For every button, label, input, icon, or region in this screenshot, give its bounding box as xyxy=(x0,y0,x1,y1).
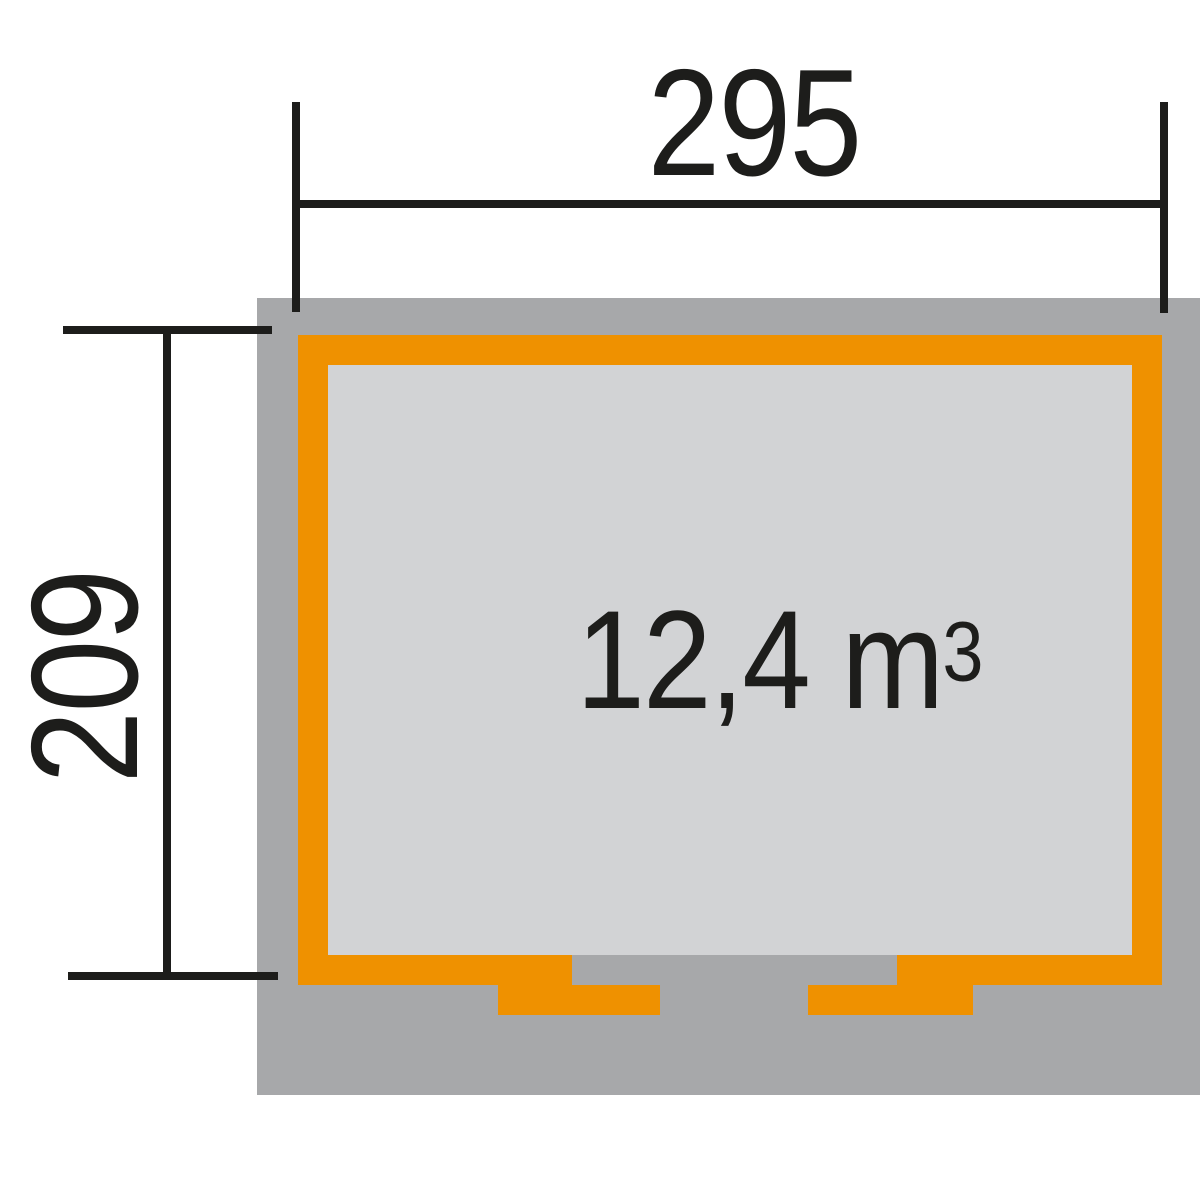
door-leaf-left xyxy=(498,985,660,1015)
width-dimension-tick-right xyxy=(1160,102,1168,313)
volume-value: 12,4 m xyxy=(576,581,942,738)
door-leaf-right xyxy=(808,985,973,1015)
volume-label: 12,4 m3 xyxy=(576,590,981,730)
width-dimension-tick-left xyxy=(292,102,300,312)
depth-dimension-tick-top xyxy=(63,326,272,334)
floor-plan-diagram: 295 209 12,4 m3 xyxy=(0,0,1200,1200)
width-dimension-label: 295 xyxy=(648,47,861,199)
depth-dimension-label: 209 xyxy=(9,571,161,784)
volume-exponent: 3 xyxy=(942,604,981,698)
door-opening xyxy=(572,955,897,985)
depth-dimension-tick-bottom xyxy=(68,972,278,980)
